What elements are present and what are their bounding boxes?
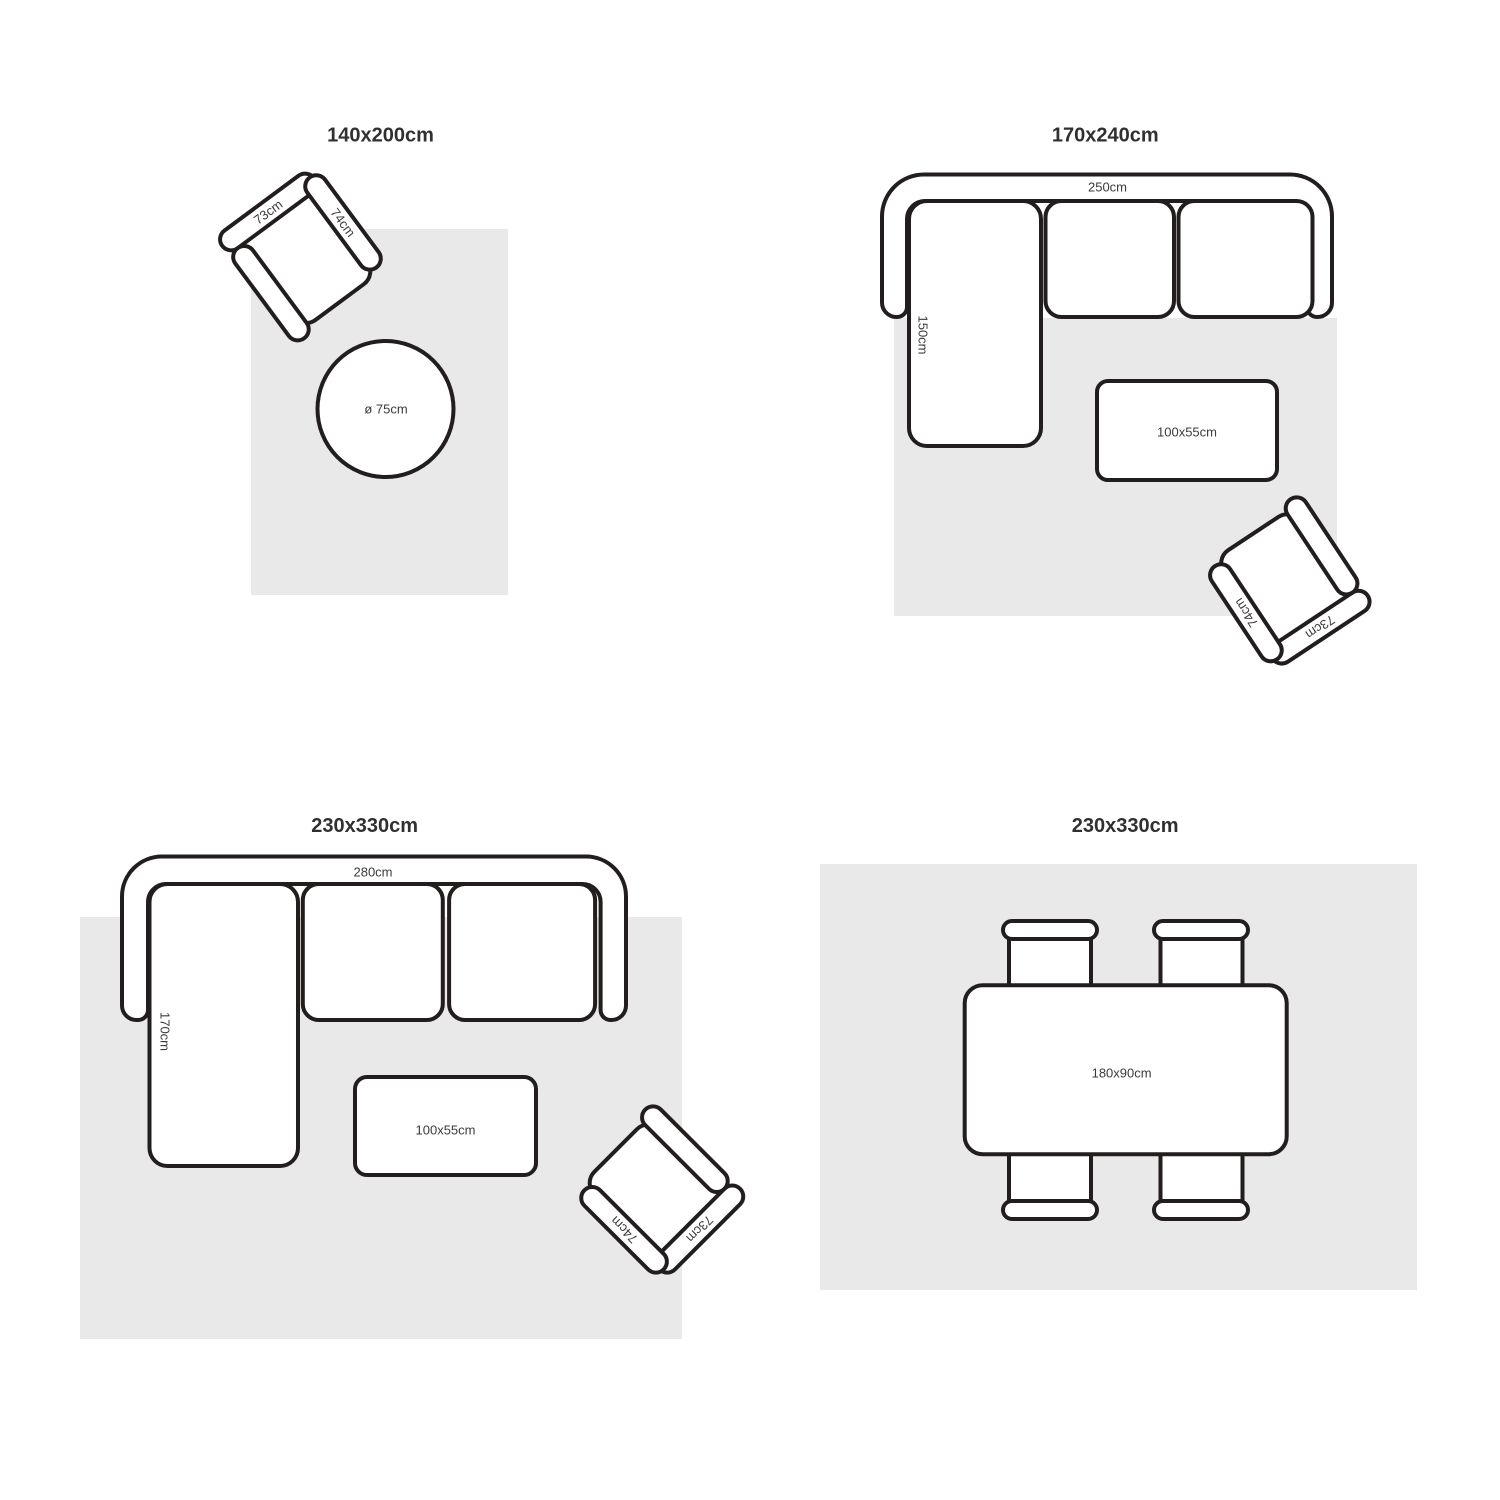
svg-text:140x200cm: 140x200cm — [327, 125, 434, 147]
svg-text:230x330cm: 230x330cm — [311, 815, 418, 837]
svg-text:100x55cm: 100x55cm — [1157, 425, 1217, 440]
svg-text:100x55cm: 100x55cm — [416, 1123, 476, 1138]
svg-text:ø 75cm: ø 75cm — [364, 402, 407, 417]
svg-text:170x240cm: 170x240cm — [1052, 125, 1159, 147]
svg-text:250cm: 250cm — [1088, 180, 1127, 195]
svg-text:150cm: 150cm — [916, 315, 931, 354]
svg-text:180x90cm: 180x90cm — [1092, 1066, 1152, 1081]
svg-text:280cm: 280cm — [353, 865, 392, 880]
svg-text:230x330cm: 230x330cm — [1072, 815, 1179, 837]
svg-text:170cm: 170cm — [158, 1012, 173, 1051]
